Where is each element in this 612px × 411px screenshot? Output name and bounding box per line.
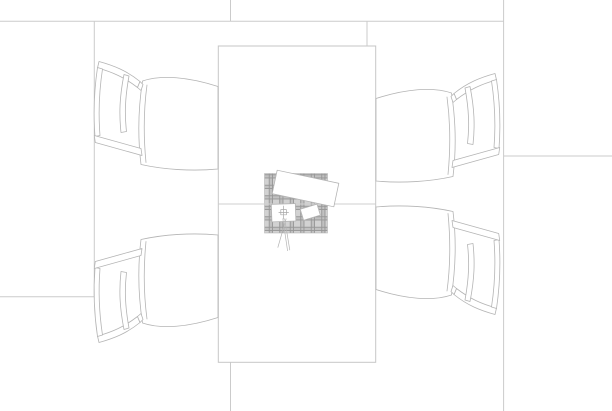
plan-drawing-canvas xyxy=(0,0,612,411)
chair-bottom-left xyxy=(94,234,218,343)
plan-drawing-svg xyxy=(0,0,612,411)
chair-top-left xyxy=(94,62,218,171)
chair-bottom-right xyxy=(376,206,500,315)
chair-top-right xyxy=(376,74,500,183)
